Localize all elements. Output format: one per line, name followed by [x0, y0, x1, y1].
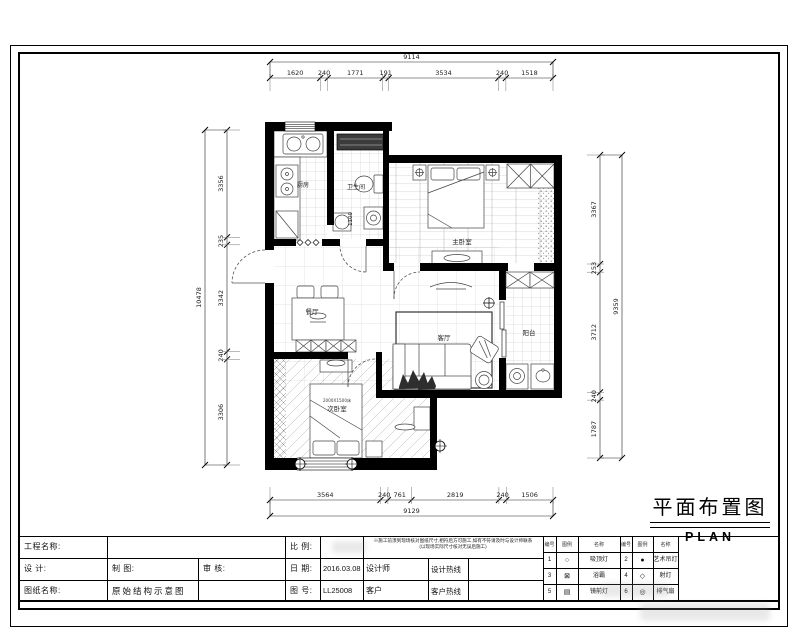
design-label: 设 计: — [24, 563, 46, 574]
legend-name: 艺术吊灯 — [653, 557, 677, 563]
project-name-label: 工程名称: — [24, 541, 61, 552]
drawing-title-cn: 平面布置图 — [642, 491, 778, 520]
pendant-lamp-icon: ● — [640, 557, 644, 564]
titleblock-bottom-line — [18, 600, 780, 602]
spotlight-icon: ◇ — [640, 573, 645, 580]
svg-text:2819: 2819 — [447, 491, 464, 499]
designer-label: 设计师 — [366, 563, 390, 574]
legend-header: 名称 — [594, 541, 604, 548]
drawing-no-label: 图 号: — [290, 585, 312, 596]
review-label: 审 核: — [203, 563, 225, 574]
drawing-sheet: 厨房 卫生间 主卧室 餐厅 客厅 阳台 次卧室 2000X1500床 1100 … — [0, 0, 800, 640]
sheet-name-value: 原始结构示意图 — [112, 585, 186, 597]
client-label: 客户 — [366, 585, 382, 596]
room-label-living: 客厅 — [438, 333, 452, 342]
legend-name: 浴霸 — [593, 573, 605, 579]
titleblock-divider — [468, 558, 469, 600]
svg-text:240: 240 — [496, 491, 508, 499]
construction-note: ※施工前须到现场核对图纸尺寸,相符后方可施工,如有不符请及时与设计师联系 (以现… — [366, 538, 540, 550]
svg-text:191: 191 — [380, 69, 392, 77]
legend-name: 射灯 — [659, 573, 671, 579]
legend-header: 编号 — [621, 541, 631, 548]
watermark-blob — [332, 541, 366, 553]
room-label-master-bedroom: 主卧室 — [452, 237, 472, 246]
legend-no: 5 — [548, 589, 551, 595]
svg-text:1771: 1771 — [347, 69, 364, 77]
svg-text:3306: 3306 — [217, 404, 225, 421]
svg-text:3564: 3564 — [317, 491, 334, 499]
room-label-kitchen: 厨房 — [297, 181, 309, 189]
svg-text:3367: 3367 — [590, 201, 598, 218]
titleblock-divider — [198, 558, 199, 600]
date-value: 2016.03.08 — [323, 564, 361, 573]
svg-text:253: 253 — [590, 262, 598, 274]
svg-text:1518: 1518 — [521, 69, 538, 77]
dimension-chain-right: 3367253371224017879359 — [587, 152, 625, 461]
svg-text:10478: 10478 — [195, 287, 203, 308]
ceiling-lamp-icon: ○ — [565, 557, 569, 564]
titleblock-row-line — [18, 580, 543, 581]
note-line-2: (以现场实际尺寸核对无误后施工) — [366, 544, 540, 550]
legend-header: 图例 — [562, 541, 572, 548]
bath-heater-icon: ⊠ — [564, 573, 570, 580]
legend-divider — [678, 536, 679, 600]
room-label-dining: 餐厅 — [306, 307, 320, 316]
titleblock-divider — [320, 536, 321, 600]
svg-text:761: 761 — [393, 491, 405, 499]
watermark-blob — [640, 603, 770, 621]
svg-text:9129: 9129 — [403, 507, 420, 515]
drawing-no-value: LL25008 — [323, 586, 352, 595]
drawing-title-block: 平面布置图 PLAN — [642, 491, 778, 544]
bedroom-wall-hatch — [274, 359, 286, 458]
svg-text:1506: 1506 — [521, 491, 538, 499]
svg-text:1787: 1787 — [590, 421, 598, 438]
dimension-chain-top: 16202401771191353424015189114 — [267, 53, 556, 91]
design-hotline-label: 设计热线 — [431, 564, 461, 575]
svg-text:240: 240 — [590, 390, 598, 402]
legend-no: 1 — [548, 557, 551, 563]
room-label-bathroom: 卫生间 — [347, 183, 365, 191]
dimension-chain-left: 33562353342240330610478 — [195, 127, 240, 468]
svg-text:240: 240 — [378, 491, 390, 499]
room-label-balcony: 阳台 — [523, 328, 536, 337]
sheet-name-label: 图纸名称: — [24, 585, 61, 596]
room-label-second-bedroom: 次卧室 — [327, 404, 347, 413]
bath-width-annotation: 1100 — [348, 212, 354, 226]
bed-size-annotation: 2000X1500床 — [323, 397, 352, 404]
scale-label: 比 例: — [290, 541, 312, 552]
client-hotline-label: 客户热线 — [431, 586, 461, 597]
titleblock-row-line — [18, 558, 543, 559]
titleblock-divider — [107, 536, 108, 600]
legend-name: 吸顶灯 — [590, 557, 608, 563]
svg-text:240: 240 — [496, 69, 508, 77]
svg-text:240: 240 — [217, 349, 225, 361]
legend-no: 3 — [548, 573, 551, 579]
titleblock-divider — [285, 536, 286, 600]
svg-text:3534: 3534 — [435, 69, 452, 77]
svg-text:3356: 3356 — [217, 175, 225, 192]
title-double-underline — [650, 522, 770, 528]
legend-header: 编号 — [544, 541, 554, 548]
titleblock-divider — [428, 558, 429, 600]
drawing-title-en: PLAN — [642, 530, 778, 544]
svg-text:3342: 3342 — [217, 290, 225, 307]
svg-text:240: 240 — [318, 69, 330, 77]
legend-no: 4 — [624, 573, 627, 579]
svg-text:9359: 9359 — [612, 298, 620, 315]
svg-text:1620: 1620 — [287, 69, 304, 77]
date-label: 日 期: — [290, 563, 312, 574]
watermark-blob — [600, 583, 670, 597]
svg-text:3712: 3712 — [590, 324, 598, 341]
mirror-lamp-icon: ▤ — [564, 589, 571, 596]
svg-text:9114: 9114 — [403, 53, 420, 61]
draft-label: 制 图: — [112, 563, 134, 574]
dimension-chain-bottom: 3564240761281924015069129 — [267, 487, 556, 519]
legend-no: 2 — [624, 557, 627, 563]
svg-text:235: 235 — [217, 235, 225, 247]
